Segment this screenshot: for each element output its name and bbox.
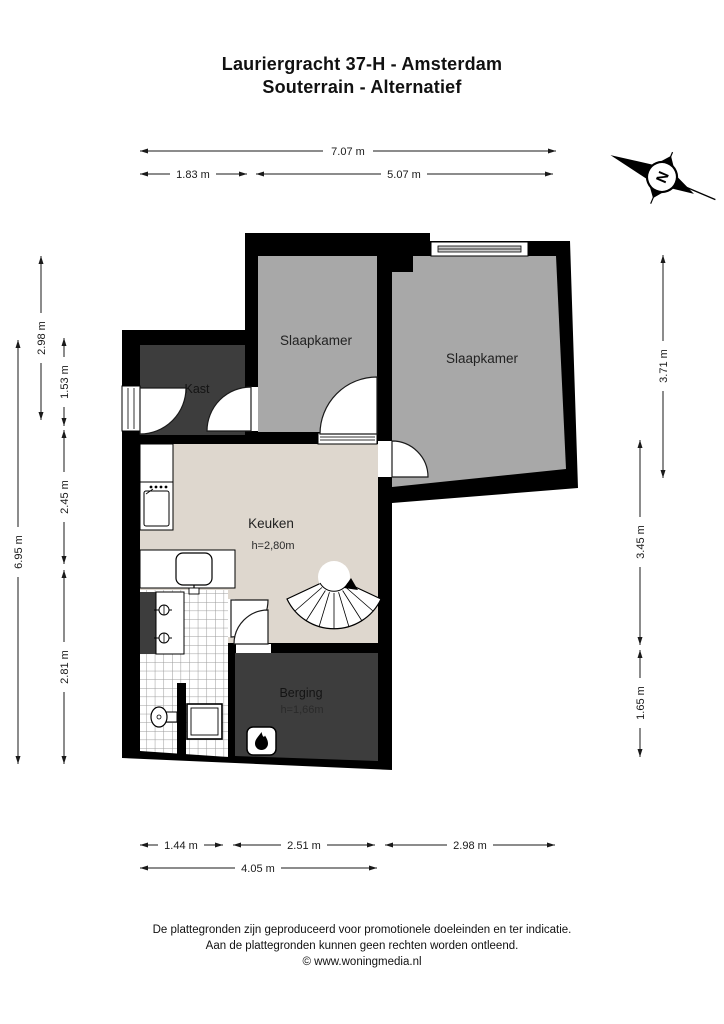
footer-block: De plattegronden zijn geproduceerd voor … <box>0 922 724 970</box>
footer-line-3: © www.woningmedia.nl <box>0 954 724 970</box>
label-berging-height: h=1,66m <box>280 704 323 716</box>
window-kast-left <box>122 386 140 431</box>
dim-right-165: 1.65 m <box>635 650 647 757</box>
dim-label: 2.51 m <box>287 840 321 852</box>
label-keuken: Keuken <box>248 516 294 531</box>
dim-left-total: 6.95 m <box>13 340 25 764</box>
dim-label: 7.07 m <box>331 146 365 158</box>
dim-label: 1.83 m <box>176 169 210 181</box>
dim-label: 2.81 m <box>59 650 71 684</box>
dim-bottom-2: 2.51 m <box>233 840 375 852</box>
dim-bottom-3: 2.98 m <box>385 840 555 852</box>
dim-label: 1.44 m <box>164 840 198 852</box>
boiler <box>247 727 276 755</box>
floor-plan-svg: N 7.07 m 1.83 m 5.07 m 1.44 m 2.51 m <box>0 0 724 1024</box>
dim-top-left: 1.83 m <box>140 169 247 181</box>
bathroom-wall-strip <box>140 592 156 654</box>
dim-label: 2.45 m <box>59 480 71 514</box>
washbasin-unit <box>154 592 184 654</box>
floorplan-page: Lauriergracht 37-H - Amsterdam Souterrai… <box>0 0 724 1024</box>
dim-right-371: 3.71 m <box>658 255 670 478</box>
dim-left-245: 2.45 m <box>59 430 71 564</box>
dim-top-total: 7.07 m <box>140 146 556 158</box>
door-gap-berging <box>236 644 271 653</box>
dim-label: 2.98 m <box>36 321 48 355</box>
dim-bottom-1: 1.44 m <box>140 840 223 852</box>
chimney-block <box>386 256 413 272</box>
label-kast: Kast <box>184 382 210 396</box>
label-keuken-height: h=2,80m <box>251 540 294 552</box>
dim-label: 1.65 m <box>635 686 647 720</box>
stove <box>140 482 173 530</box>
dim-right-345: 3.45 m <box>635 440 647 645</box>
shower <box>187 704 222 739</box>
dim-left-153: 1.53 m <box>59 338 71 426</box>
dim-left-298: 2.98 m <box>36 256 48 420</box>
door-gap-slaapkamer-right <box>378 441 392 477</box>
compass: N <box>599 130 724 226</box>
dim-label: 2.98 m <box>453 840 487 852</box>
label-slaapkamer-right: Slaapkamer <box>446 351 519 366</box>
dim-top-right: 5.07 m <box>256 169 553 181</box>
footer-line-2: Aan de plattegronden kunnen geen rechten… <box>0 938 724 954</box>
dim-label: 5.07 m <box>387 169 421 181</box>
window-slaapkamer-right-top <box>431 242 528 256</box>
dim-label: 3.71 m <box>658 349 670 383</box>
dim-left-281: 2.81 m <box>59 570 71 764</box>
dim-label: 4.05 m <box>241 863 275 875</box>
dim-label: 6.95 m <box>13 535 25 569</box>
dim-label: 3.45 m <box>635 525 647 559</box>
dim-label: 1.53 m <box>59 365 71 399</box>
label-slaapkamer-left: Slaapkamer <box>280 333 353 348</box>
dim-bottom-total: 4.05 m <box>140 863 377 875</box>
toilet-partition-wall <box>177 683 186 757</box>
label-berging: Berging <box>279 686 322 700</box>
window-slaapkamer-left-threshold <box>318 433 377 444</box>
footer-line-1: De plattegronden zijn geproduceerd voor … <box>0 922 724 938</box>
